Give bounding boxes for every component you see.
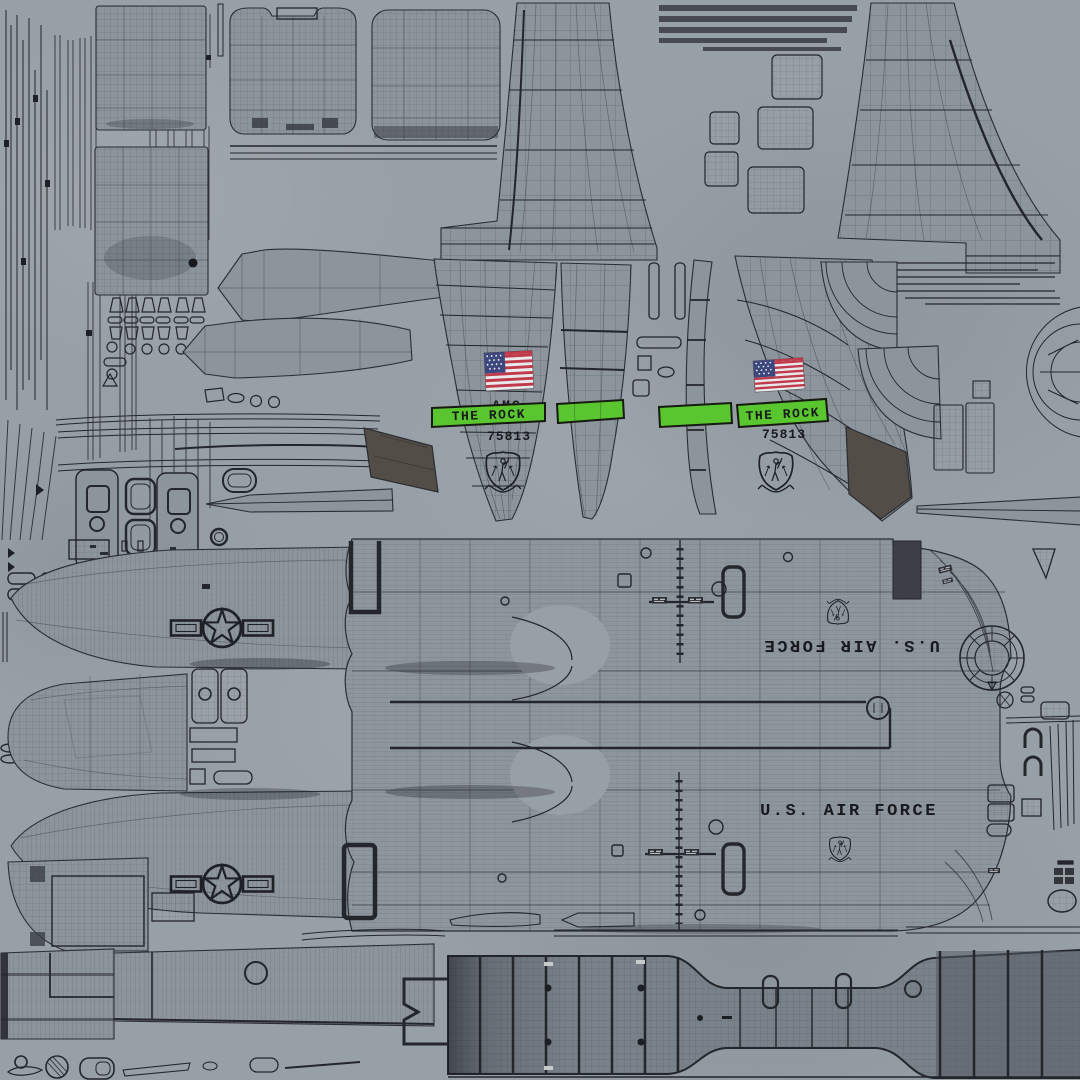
panel-grid-mid — [95, 147, 208, 295]
bottom-small-parts — [8, 1056, 360, 1079]
antiglare-patch-left — [364, 428, 438, 492]
prop-blade-a — [218, 249, 452, 322]
atlas-canvas: AMC THE ROCK 75813 AMC THE ROCK 75813 — [0, 0, 1080, 1080]
belly-strip — [404, 950, 1080, 1078]
edge-disc — [1026, 307, 1080, 437]
tail-number-left: 75813 — [487, 429, 531, 444]
texture-atlas-sheet: AMC THE ROCK 75813 AMC THE ROCK 75813 — [0, 0, 1080, 1080]
panel-grid-top — [96, 6, 206, 130]
nose-side-panel — [8, 858, 148, 951]
grid-patches — [705, 55, 822, 213]
between-fin-fittings — [633, 263, 685, 396]
long-strake-strips — [56, 414, 380, 471]
tail-number-right: 75813 — [762, 427, 806, 442]
us-flag-icon-left — [484, 350, 534, 391]
command-shield-icon-right — [758, 452, 794, 492]
wing-upper — [11, 547, 362, 670]
tail-fin-left-mirror — [557, 263, 631, 519]
nickname-label-left: THE ROCK — [451, 407, 526, 425]
usaf-title-lower: U.S. AIR FORCE — [760, 802, 938, 821]
tail-fin-left: AMC THE ROCK 75813 — [432, 259, 557, 521]
outer-wing-panel — [114, 944, 434, 1026]
usaf-title-upper: U.S. AIR FORCE — [762, 635, 940, 654]
radome-rings — [960, 626, 1024, 690]
fin-upper-right — [838, 3, 1060, 273]
right-grid-patches — [934, 381, 994, 473]
stripe-bars — [659, 5, 857, 51]
cockpit-crown-panel — [8, 674, 187, 791]
dark-panel-top — [893, 541, 921, 599]
name-stripe-right: THE ROCK — [659, 399, 828, 427]
us-flag-icon-right — [753, 358, 805, 393]
nacelle-top-a — [218, 4, 356, 134]
name-stripe-left-mirror — [557, 400, 624, 423]
tail-spike — [917, 497, 1080, 525]
rudder-strip — [686, 260, 716, 514]
rule-lines — [230, 146, 497, 159]
wingtip-panel — [1, 949, 114, 1039]
fuselage-shell: U.S. AIR FORCE U.S. AIR FORCE — [344, 539, 1011, 934]
prop-blade-b — [183, 317, 412, 378]
nacelle-top-b — [372, 10, 500, 140]
